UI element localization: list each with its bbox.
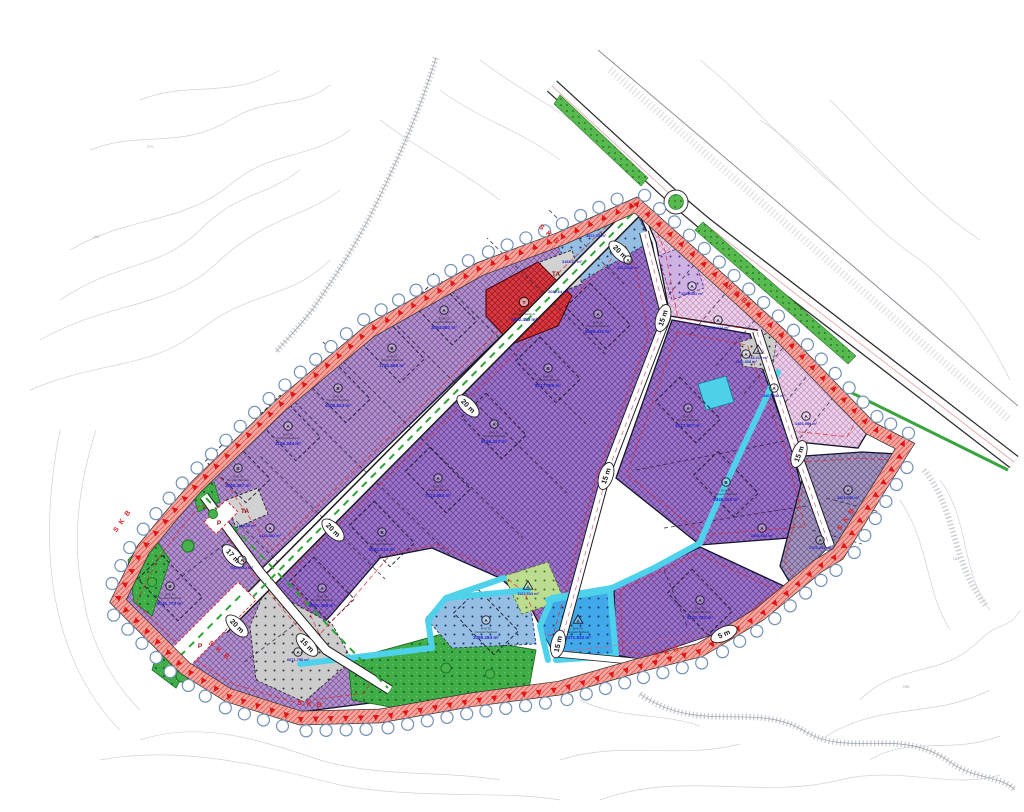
boundary-tree-icon <box>163 492 175 504</box>
boundary-tree-icon <box>276 720 288 732</box>
parcel-area-text: 2851.664 m² <box>751 533 774 538</box>
boundary-tree-icon <box>611 193 623 205</box>
boundary-tree-icon <box>676 662 688 674</box>
boundary-tree-icon <box>758 296 770 308</box>
boundary-tree-icon <box>728 270 740 282</box>
boundary-tree-icon <box>441 711 453 723</box>
boundary-tree-icon <box>580 688 592 700</box>
tree-icon <box>486 670 495 679</box>
boundary-tree-icon <box>599 682 611 694</box>
parcel-area-text: 9156.227 m² <box>481 439 508 444</box>
svg-text:Yençok=Serbest: Yençok=Serbest <box>537 378 560 382</box>
svg-text:Yençok=Serbest: Yençok=Serbest <box>587 324 610 328</box>
boundary-tree-icon <box>734 635 746 647</box>
roundabout-island <box>669 195 684 210</box>
parcel-annotation: 3872.55 m² <box>586 233 607 238</box>
boundary-tree-icon <box>294 366 306 378</box>
zone-label: P <box>198 643 203 650</box>
parcel-area-text: 3118.452 m² <box>259 533 282 538</box>
boundary-tree-icon <box>880 495 892 507</box>
boundary-tree-icon <box>402 718 414 730</box>
boundary-tree-icon <box>360 723 372 735</box>
zoning-plan-map: 20 m20 m20 m20 m15 m15 m15 m15 m17 m15 m… <box>0 0 1024 812</box>
contour-elevation-label: 258 <box>903 684 910 689</box>
svg-text:Yençok=Serbest: Yençok=Serbest <box>433 320 456 324</box>
boundary-tree-icon <box>769 613 781 625</box>
parcel-area-text: 1307.442 m² <box>763 393 786 398</box>
parcel-area-text: 1109.32 m² <box>236 523 256 528</box>
boundary-tree-icon <box>869 512 881 524</box>
parcel-area-text: 1034.551 m² <box>681 291 704 296</box>
boundary-tree-icon <box>788 324 800 336</box>
boundary-tree-icon <box>219 702 231 714</box>
boundary-tree-icon <box>382 722 394 734</box>
boundary-tree-icon <box>637 672 649 684</box>
boundary-tree-icon <box>310 353 322 365</box>
boundary-tree-icon <box>300 725 312 737</box>
boundary-tree-icon <box>751 625 763 637</box>
boundary-tree-icon <box>901 461 913 473</box>
tree-icon <box>182 540 194 552</box>
green-median-strip <box>554 95 648 186</box>
parcel-annotation: 3164.27 m² <box>562 259 583 264</box>
parcel-area-text: 3310.246 m² <box>617 265 640 270</box>
boundary-tree-icon <box>182 679 194 691</box>
boundary-tree-icon <box>263 393 275 405</box>
boundary-tree-icon <box>619 677 631 689</box>
parcel-area-text: 4408.624 m² <box>325 403 352 408</box>
parcel-area-text: 2962.453 m² <box>511 317 538 322</box>
boundary-tree-icon <box>106 578 118 590</box>
boundary-tree-icon <box>191 462 203 474</box>
svg-text:Yençok=Serbest: Yençok=Serbest <box>311 598 334 602</box>
boundary-tree-icon <box>575 210 587 222</box>
svg-text:Yençok=Serbest: Yençok=Serbest <box>381 358 404 362</box>
boundary-tree-icon <box>461 708 473 720</box>
boundary-tree-icon <box>108 609 120 621</box>
boundary-tree-icon <box>683 229 695 241</box>
parcel-area-text: 6340.118 m² <box>713 497 739 502</box>
boundary-tree-icon <box>801 339 813 351</box>
parcel-area-text: 2703.341 m² <box>809 545 832 550</box>
plan-canvas: 20 m20 m20 m20 m15 m15 m15 m15 m17 m15 m… <box>0 0 1024 812</box>
boundary-tree-icon <box>815 574 827 586</box>
boundary-tree-icon <box>829 367 841 379</box>
parcel-area-text: 4417.507 m² <box>675 423 702 428</box>
parcel-area-text: 1466.059 m² <box>795 421 818 426</box>
boundary-tree-icon <box>279 379 291 391</box>
boundary-tree-icon <box>871 411 883 423</box>
svg-text:Yençok=Serbest: Yençok=Serbest <box>677 418 700 422</box>
svg-text:Yençok=Serbest: Yençok=Serbest <box>513 312 536 316</box>
boundary-tree-icon <box>340 724 352 736</box>
parcel-area-text: 3094.082 m² <box>431 325 458 330</box>
boundary-tree-icon <box>859 529 871 541</box>
boundary-tree-icon <box>199 690 211 702</box>
boundary-tree-icon <box>375 304 387 316</box>
boundary-tree-icon <box>843 382 855 394</box>
parcel-area-text: 1218.374 m² <box>707 325 730 330</box>
boundary-tree-icon <box>639 189 651 201</box>
parcel-area-text: 5241.773 m² <box>157 601 184 606</box>
parcel-annotation: 1109.32 m² <box>236 523 256 528</box>
contour-elevation-label: 270 <box>147 144 154 149</box>
svg-text:Yençok=Serbest: Yençok=Serbest <box>327 398 350 402</box>
skb-band-label: S K B <box>112 508 133 533</box>
parcel-area-text: 8651.913 m² <box>369 547 396 552</box>
svg-text:Yençok=Serbest: Yençok=Serbest <box>227 478 250 482</box>
boundary-tree-icon <box>885 418 897 430</box>
boundary-tree-icon <box>556 218 568 230</box>
parcel-area-text: 1781.666 m² <box>379 363 406 368</box>
boundary-tree-icon <box>462 255 474 267</box>
parcel-area-text: 2034.64 m² <box>548 289 569 294</box>
boundary-tree-icon <box>257 714 269 726</box>
parcel-annotation: 2034.64 m² <box>548 289 569 294</box>
boundary-tree-icon <box>320 724 332 736</box>
parcel-area-text: 1122.603 m² <box>517 591 540 596</box>
boundary-tree-icon <box>520 232 532 244</box>
boundary-tree-icon <box>445 265 457 277</box>
boundary-tree-icon <box>857 396 869 408</box>
boundary-tree-icon <box>815 353 827 365</box>
boundary-tree-icon <box>427 274 439 286</box>
boundary-tree-icon <box>593 201 605 213</box>
boundary-tree-icon <box>657 667 669 679</box>
boundary-tree-icon <box>772 310 784 322</box>
boundary-tree-icon <box>890 478 902 490</box>
boundary-tree-icon <box>122 623 134 635</box>
tree-icon <box>209 510 218 519</box>
boundary-tree-icon <box>717 646 729 658</box>
parcel-area-text: 3386.284 m² <box>473 635 500 640</box>
parcel-area-text: 5689.431 m² <box>585 329 612 334</box>
parcel-area-text: 2471.932 m² <box>565 635 592 640</box>
parcel-area-text: 3155.244 m² <box>275 441 302 446</box>
parcel-area-text: 6071.795 m² <box>287 657 310 662</box>
boundary-tree-icon <box>136 637 148 649</box>
boundary-tree-icon <box>784 600 796 612</box>
parcel-area-text: 7423.884 m² <box>425 493 452 498</box>
zone-label: TA <box>241 508 249 515</box>
boundary-tree-icon <box>482 246 494 258</box>
parcel-area-text: 3164.27 m² <box>562 259 583 264</box>
parcel-area-text: 743.219 m² <box>748 355 769 360</box>
boundary-tree-icon <box>669 216 681 228</box>
parcel-area-text: 8901.368 m² <box>309 603 336 608</box>
boundary-tree-icon <box>150 651 162 663</box>
parcel-area-text: 3921.556 m² <box>837 495 860 500</box>
svg-text:Yençok=Serbest: Yençok=Serbest <box>277 436 300 440</box>
boundary-tree-icon <box>830 564 842 576</box>
svg-text:Yençok=Serbest: Yençok=Serbest <box>715 492 738 496</box>
parcel-area-text: 2860.387 m² <box>225 483 252 488</box>
parcel-area-text: 8017.909 m² <box>535 383 562 388</box>
boundary-tree-icon <box>902 427 914 439</box>
boundary-tree-icon <box>325 341 337 353</box>
svg-text:Yençok=Serbest: Yençok=Serbest <box>475 630 498 634</box>
boundary-tree-icon <box>480 705 492 717</box>
boundary-tree-icon <box>249 406 261 418</box>
svg-text:Yençok=Serbest: Yençok=Serbest <box>567 630 590 634</box>
boundary-tree-icon <box>115 560 127 572</box>
boundary-tree-icon <box>848 546 860 558</box>
boundary-tree-icon <box>124 542 136 554</box>
svg-text:Yençok=Serbest: Yençok=Serbest <box>427 488 450 492</box>
boundary-tree-icon <box>176 477 188 489</box>
boundary-tree-icon <box>220 434 232 446</box>
zone-label: TA <box>552 271 560 278</box>
parcel-area-text: 3872.55 m² <box>586 233 607 238</box>
contour-elevation-label: 252 <box>953 556 960 561</box>
boundary-tree-icon <box>238 708 250 720</box>
boundary-tree-icon <box>520 700 532 712</box>
svg-text:Yençok=Serbest: Yençok=Serbest <box>371 542 394 546</box>
boundary-tree-icon <box>539 697 551 709</box>
zone-label: P <box>217 520 222 527</box>
boundary-tree-icon <box>150 508 162 520</box>
svg-text:Yençok=Serbest: Yençok=Serbest <box>689 610 712 614</box>
boundary-tree-icon <box>713 256 725 268</box>
boundary-tree-icon <box>205 448 217 460</box>
tree-icon <box>148 578 157 587</box>
boundary-tree-icon <box>137 523 149 535</box>
parcel-area-text: 2944.162 m² <box>231 565 254 570</box>
boundary-tree-icon <box>421 715 433 727</box>
boundary-tree-icon <box>164 666 176 678</box>
boundary-tree-icon <box>501 239 513 251</box>
parcel-area-text: 8101.763 m² <box>687 615 714 620</box>
boundary-tree-icon <box>561 694 573 706</box>
boundary-tree-icon <box>654 203 666 215</box>
boundary-tree-icon <box>500 702 512 714</box>
svg-text:T: T <box>523 300 526 305</box>
boundary-tree-icon <box>696 657 708 669</box>
boundary-tree-icon <box>340 328 352 340</box>
svg-text:Yençok=Serbest: Yençok=Serbest <box>483 434 506 438</box>
boundary-tree-icon <box>358 314 370 326</box>
boundary-tree-icon <box>410 284 422 296</box>
boundary-tree-icon <box>698 242 710 254</box>
contour-elevation-label: 266 <box>93 234 100 239</box>
boundary-tree-icon <box>393 294 405 306</box>
svg-text:Yençok=Serbest: Yençok=Serbest <box>159 596 182 600</box>
boundary-tree-icon <box>234 420 246 432</box>
boundary-tree-icon <box>800 587 812 599</box>
tree-icon <box>441 663 451 673</box>
boundary-tree-icon <box>743 283 755 295</box>
